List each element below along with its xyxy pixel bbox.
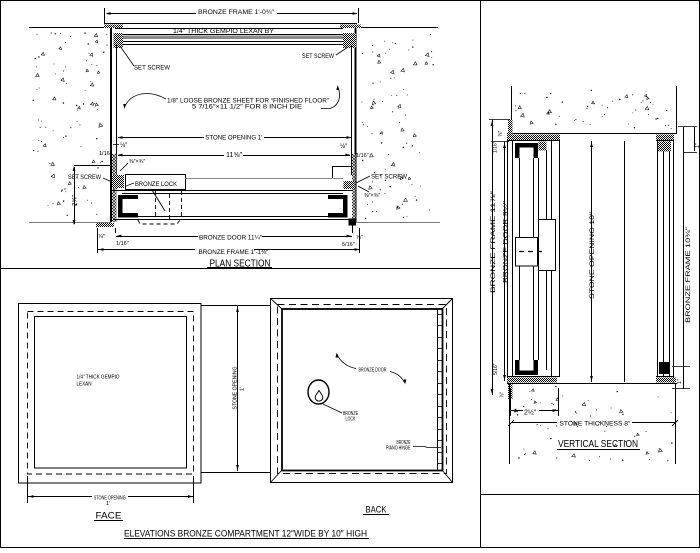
svg-text:5/16″: 5/16″ (342, 242, 355, 248)
svg-text:BRONZE FRAME 10¾″: BRONZE FRAME 10¾″ (685, 226, 692, 323)
svg-text:⅞″: ⅞″ (356, 235, 363, 241)
svg-text:BRONZE FRAME 11⅞″: BRONZE FRAME 11⅞″ (490, 190, 497, 293)
svg-text:5/16″: 5/16″ (493, 363, 499, 375)
svg-text:⅛″: ⅛″ (340, 144, 348, 150)
svg-text:LOCK: LOCK (346, 417, 356, 423)
svg-text:2⅝″: 2⅝″ (72, 194, 79, 206)
svg-text:STONE OPENING 10″: STONE OPENING 10″ (589, 211, 596, 299)
svg-text:⅜″×⅜″: ⅜″×⅜″ (364, 193, 380, 199)
svg-text:5 7/16″×11 1/2″ FOR 8 INCH DIE: 5 7/16″×11 1/2″ FOR 8 INCH DIE (192, 103, 302, 110)
svg-text:1/16″: 1/16″ (116, 241, 129, 247)
svg-text:1″: 1″ (677, 379, 683, 384)
svg-text:STONE THICKNESS 8″: STONE THICKNESS 8″ (559, 420, 631, 427)
svg-text:⅛″: ⅛″ (120, 143, 128, 149)
svg-text:1/4″ THICK GEMPIO: 1/4″ THICK GEMPIO (77, 374, 120, 380)
svg-text:⅞″: ⅞″ (98, 234, 105, 240)
svg-text:2½″: 2½″ (524, 408, 537, 416)
svg-text:⅜″×¾″: ⅜″×¾″ (129, 159, 145, 165)
svg-text:1/16″: 1/16″ (493, 141, 499, 153)
svg-text:1′: 1′ (240, 387, 246, 391)
svg-text:1/16″: 1/16″ (99, 151, 112, 157)
svg-text:SET SCREW: SET SCREW (134, 64, 171, 71)
svg-text:1′: 1′ (106, 501, 110, 507)
svg-text:1/4″ THICK GEMPIO LEXAN BY: 1/4″ THICK GEMPIO LEXAN BY (173, 28, 274, 35)
svg-text:PIANO HINGE: PIANO HINGE (386, 445, 411, 451)
svg-text:BRONZE DOOR 9½″: BRONZE DOOR 9½″ (502, 200, 510, 283)
svg-text:BACK: BACK (366, 505, 387, 515)
svg-text:1″: 1″ (695, 143, 700, 148)
svg-text:1/16″: 1/16″ (356, 153, 369, 159)
svg-text:LEXAN: LEXAN (77, 381, 92, 387)
svg-text:SET SCREW: SET SCREW (68, 174, 101, 181)
svg-text:FACE: FACE (96, 511, 122, 521)
svg-text:STONE OPENING 1′: STONE OPENING 1′ (205, 135, 263, 142)
svg-text:11⅝″: 11⅝″ (226, 150, 242, 159)
svg-text:ELEVATIONS BRONZE COMPARTMENT: ELEVATIONS BRONZE COMPARTMENT 12″WIDE BY… (124, 528, 367, 538)
svg-text:BRONZE FRAME 1′-1⅜″: BRONZE FRAME 1′-1⅜″ (199, 249, 270, 256)
svg-text:BRONZE DOOR 11¼″: BRONZE DOOR 11¼″ (199, 234, 263, 241)
svg-text:SET SCREW: SET SCREW (302, 53, 334, 60)
svg-text:BRONZE DOOR: BRONZE DOOR (359, 368, 387, 374)
svg-text:BRONZE FRAME 1′-0¾″: BRONZE FRAME 1′-0¾″ (198, 9, 275, 16)
svg-text:SET SCREW: SET SCREW (371, 174, 407, 181)
svg-text:BRONZE LOCK: BRONZE LOCK (135, 181, 178, 188)
svg-text:VERTICAL SECTION: VERTICAL SECTION (558, 439, 638, 450)
svg-text:STONE OPENING: STONE OPENING (233, 367, 239, 410)
svg-text:⅞″: ⅞″ (500, 392, 506, 398)
svg-text:⅞″: ⅞″ (498, 131, 504, 137)
